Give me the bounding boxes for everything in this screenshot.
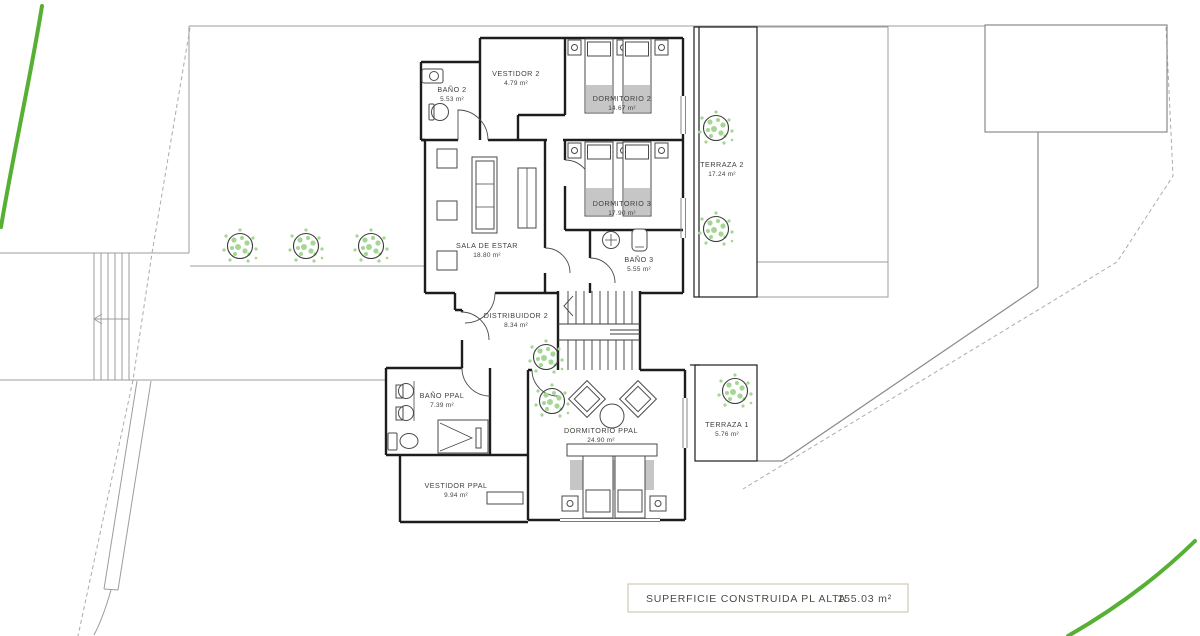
room-label-terraza2: TERRAZA 2 17.24 m² [700, 160, 744, 178]
svg-text:17.24 m²: 17.24 m² [708, 171, 736, 178]
vestidor-ppal-shelf [487, 492, 523, 504]
svg-text:5.53 m²: 5.53 m² [440, 96, 464, 103]
bano-ppal-fixtures [388, 381, 418, 450]
svg-text:7.39 m²: 7.39 m² [430, 402, 454, 409]
room-label-vestidor2: VESTIDOR 2 4.79 m² [492, 69, 540, 87]
bano-2-fixtures [422, 69, 449, 121]
room-label-bano2: BAÑO 2 5.53 m² [437, 85, 466, 103]
garden-ramp [94, 381, 151, 635]
dormitorio-ppal-armchairs [569, 381, 657, 428]
roof-terrace-below [757, 27, 888, 297]
room-label-bano3: BAÑO 3 5.55 m² [624, 255, 653, 273]
svg-text:VESTIDOR 2: VESTIDOR 2 [492, 69, 540, 78]
svg-text:9.94 m²: 9.94 m² [444, 492, 468, 499]
neighbor-building-outline [985, 25, 1167, 132]
road-edge-bottom-right [1068, 541, 1195, 636]
garden-trees [222, 110, 752, 417]
floor-plan-drawing: BAÑO 2 5.53 m² VESTIDOR 2 4.79 m² DORMIT… [0, 0, 1200, 636]
surface-summary-box: SUPERFICIE CONSTRUIDA PL ALTA 155.03 m² [628, 584, 908, 612]
room-label-vestidor-ppal: VESTIDOR PPAL 9.94 m² [424, 481, 487, 499]
room-label-distribuidor2: DISTRIBUIDOR 2 8.34 m² [484, 311, 549, 329]
room-label-terraza1: TERRAZA 1 5.76 m² [705, 420, 749, 438]
svg-text:24.90 m²: 24.90 m² [587, 437, 615, 444]
room-label-sala: SALA DE ESTAR 18.80 m² [456, 241, 518, 259]
terraza-1-walls [690, 365, 757, 461]
svg-text:BAÑO 3: BAÑO 3 [624, 255, 653, 264]
svg-text:DORMITORIO 2: DORMITORIO 2 [593, 94, 652, 103]
svg-text:5.55 m²: 5.55 m² [627, 266, 651, 273]
svg-text:VESTIDOR PPAL: VESTIDOR PPAL [424, 481, 487, 490]
surface-summary-value: 155.03 m² [838, 593, 892, 605]
shower [438, 420, 488, 453]
svg-text:DORMITORIO PPAL: DORMITORIO PPAL [564, 426, 638, 435]
svg-text:DORMITORIO 3: DORMITORIO 3 [593, 199, 652, 208]
room-label-dormitorio-ppal: DORMITORIO PPAL 24.90 m² [564, 426, 638, 444]
room-label-bano-ppal: BAÑO PPAL 7.39 m² [420, 391, 465, 409]
floor-plan: BAÑO 2 5.53 m² VESTIDOR 2 4.79 m² DORMIT… [0, 0, 1200, 636]
svg-text:DISTRIBUIDOR 2: DISTRIBUIDOR 2 [484, 311, 549, 320]
svg-text:5.76 m²: 5.76 m² [715, 431, 739, 438]
svg-text:TERRAZA 2: TERRAZA 2 [700, 160, 744, 169]
svg-text:8.34 m²: 8.34 m² [504, 322, 528, 329]
svg-text:BAÑO 2: BAÑO 2 [437, 85, 466, 94]
dormitorio-ppal-bed [562, 444, 666, 518]
interior-stairs [558, 291, 640, 370]
svg-text:4.79 m²: 4.79 m² [504, 80, 528, 87]
svg-text:BAÑO PPAL: BAÑO PPAL [420, 391, 465, 400]
road-edge-top-left [1, 6, 42, 227]
svg-text:TERRAZA 1: TERRAZA 1 [705, 420, 749, 429]
sala-sofa [472, 157, 497, 233]
svg-text:SALA DE ESTAR: SALA DE ESTAR [456, 241, 518, 250]
svg-text:17.90 m²: 17.90 m² [608, 210, 636, 217]
bano-3-fixtures [603, 229, 648, 251]
plot-boundaries [0, 26, 1173, 636]
surface-summary-label: SUPERFICIE CONSTRUIDA PL ALTA [646, 593, 846, 605]
svg-text:18.80 m²: 18.80 m² [473, 252, 501, 259]
exterior-stairs [94, 253, 129, 380]
svg-text:14.67 m²: 14.67 m² [608, 105, 636, 112]
